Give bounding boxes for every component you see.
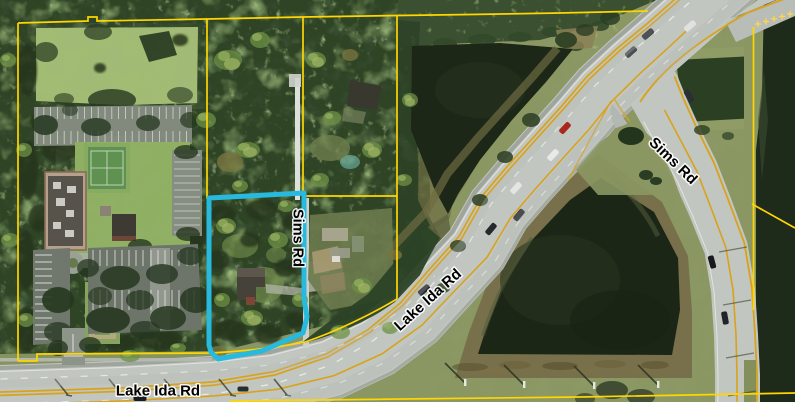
svg-text:Sims Rd: Sims Rd (290, 209, 306, 267)
svg-text:Lake Ida Rd: Lake Ida Rd (116, 383, 200, 400)
